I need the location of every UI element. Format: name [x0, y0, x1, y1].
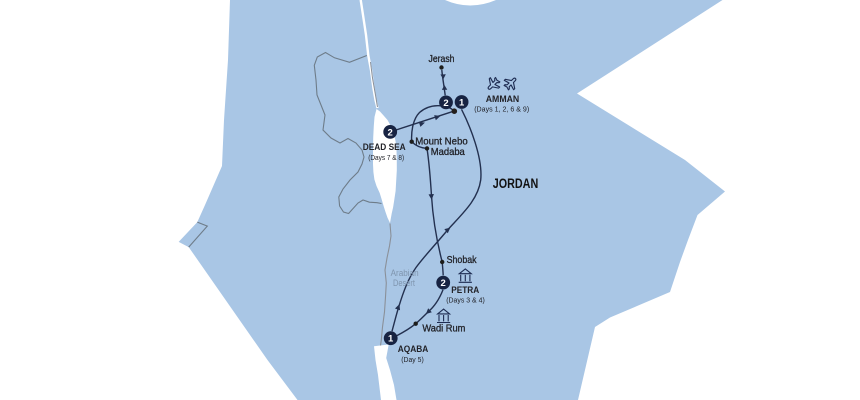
svg-text:2: 2	[443, 98, 448, 109]
svg-text:Madaba: Madaba	[431, 146, 465, 158]
svg-text:(Days 1, 2, 6 & 9): (Days 1, 2, 6 & 9)	[474, 105, 529, 114]
svg-text:1: 1	[388, 334, 394, 345]
svg-text:JORDAN: JORDAN	[493, 176, 539, 191]
svg-text:AQABA: AQABA	[398, 344, 429, 354]
svg-text:PETRA: PETRA	[451, 285, 479, 295]
svg-text:Desert: Desert	[393, 278, 415, 288]
svg-text:(Days 7 & 8): (Days 7 & 8)	[368, 153, 404, 162]
svg-text:(Day 5): (Day 5)	[401, 355, 424, 364]
svg-text:1: 1	[459, 97, 465, 108]
svg-text:AMMAN: AMMAN	[486, 94, 520, 104]
svg-text:2: 2	[388, 127, 393, 138]
svg-text:Shobak: Shobak	[447, 254, 478, 266]
svg-text:(Days 3 & 4): (Days 3 & 4)	[446, 295, 485, 304]
svg-text:Wadi Rum: Wadi Rum	[422, 323, 465, 335]
svg-text:2: 2	[441, 278, 446, 289]
svg-text:Arabian: Arabian	[391, 268, 419, 278]
svg-text:DEAD SEA: DEAD SEA	[363, 142, 406, 152]
svg-text:Jerash: Jerash	[429, 53, 455, 65]
